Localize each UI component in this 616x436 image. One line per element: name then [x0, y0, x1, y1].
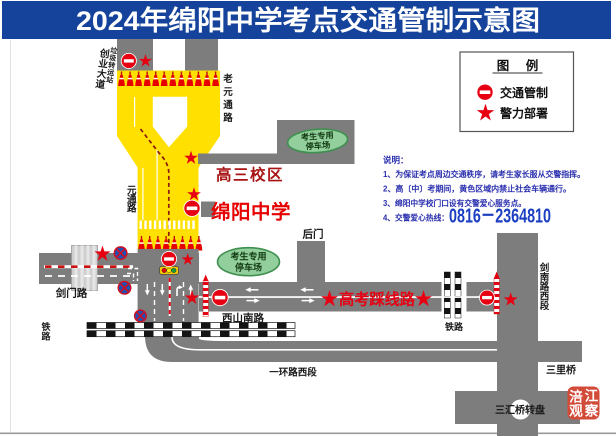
svg-text:元: 元: [223, 87, 233, 98]
svg-text:三里桥: 三里桥: [546, 364, 577, 377]
svg-text:后门: 后门: [303, 228, 324, 241]
svg-text:路: 路: [223, 112, 233, 124]
svg-text:2、高〔中〕考期间，黄色区域内禁止社会车辆通行。: 2、高〔中〕考期间，黄色区域内禁止社会车辆通行。: [383, 184, 571, 194]
svg-text:通: 通: [223, 100, 233, 111]
svg-text:路: 路: [41, 331, 51, 342]
svg-text:0816－2364810: 0816－2364810: [449, 205, 551, 228]
svg-text:高三校区: 高三校区: [216, 165, 284, 184]
svg-text:铁: 铁: [41, 321, 50, 332]
svg-text:段: 段: [540, 300, 550, 312]
svg-text:停车场: 停车场: [235, 262, 262, 273]
svg-text:图: 图: [497, 59, 510, 73]
svg-text:高考踩线路: 高考踩线路: [339, 291, 416, 309]
svg-text:1、为保证考点周边交通秩序，请考生家长服从交警指挥。: 1、为保证考点周边交通秩序，请考生家长服从交警指挥。: [383, 169, 585, 179]
svg-text:停车场: 停车场: [305, 140, 330, 152]
svg-text:站: 站: [106, 75, 114, 85]
svg-text:警力部署: 警力部署: [499, 105, 548, 120]
svg-text:观: 观: [569, 404, 583, 419]
svg-text:铁路: 铁路: [445, 321, 464, 332]
svg-text:绵阳中学: 绵阳中学: [211, 201, 291, 224]
svg-text:例: 例: [526, 58, 539, 73]
svg-text:一环路西段: 一环路西段: [269, 367, 317, 379]
svg-text:三汇桥转盘: 三汇桥转盘: [495, 404, 545, 417]
svg-text:察: 察: [585, 403, 599, 419]
svg-text:剑门路: 剑门路: [55, 287, 88, 300]
svg-text:老: 老: [222, 73, 233, 85]
svg-text:考生专用: 考生专用: [230, 251, 266, 262]
svg-text:说明：: 说明：: [383, 155, 409, 165]
svg-text:路: 路: [127, 203, 137, 215]
svg-text:西山南路: 西山南路: [222, 312, 264, 325]
svg-text:交通管制: 交通管制: [500, 85, 548, 100]
svg-text:江: 江: [585, 388, 599, 404]
svg-text:涪: 涪: [569, 389, 583, 405]
svg-text:4、交警爱心热线：: 4、交警爱心热线：: [383, 213, 449, 223]
svg-text:2024年绵阳中学考点交通管制示意图: 2024年绵阳中学考点交通管制示意图: [76, 5, 540, 36]
